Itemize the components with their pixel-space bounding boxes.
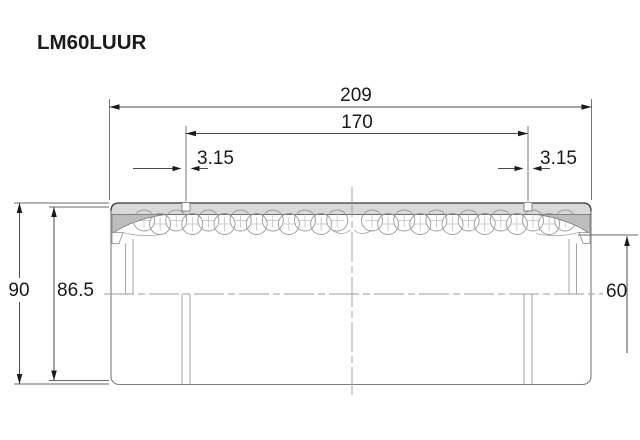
- dim-groove-width-left-label: 3.15: [197, 148, 234, 169]
- dim-seal-outer-diameter: 86.5: [49, 207, 109, 381]
- dim-bore-diameter-label: 60: [606, 281, 627, 302]
- dim-overall-length-label: 209: [340, 85, 372, 106]
- retaining-ring-groove-right: [524, 203, 532, 212]
- dim-groove-width-left: 3.15: [133, 148, 234, 171]
- bearing-drawing-svg: LM60LUUR 209 170: [0, 0, 640, 440]
- dim-groove-spacing: 170: [186, 112, 528, 201]
- dim-outer-diameter-label: 90: [8, 280, 29, 301]
- technical-drawing: LM60LUUR 209 170: [0, 0, 640, 440]
- dim-groove-width-right: 3.15: [498, 148, 577, 171]
- retaining-ring-groove-left: [182, 203, 190, 212]
- dim-overall-length: 209: [110, 85, 592, 200]
- part-number-label: LM60LUUR: [37, 31, 147, 54]
- dim-groove-width-right-label: 3.15: [540, 148, 577, 169]
- dim-groove-spacing-label: 170: [341, 112, 373, 133]
- dim-seal-outer-diameter-label: 86.5: [57, 280, 94, 301]
